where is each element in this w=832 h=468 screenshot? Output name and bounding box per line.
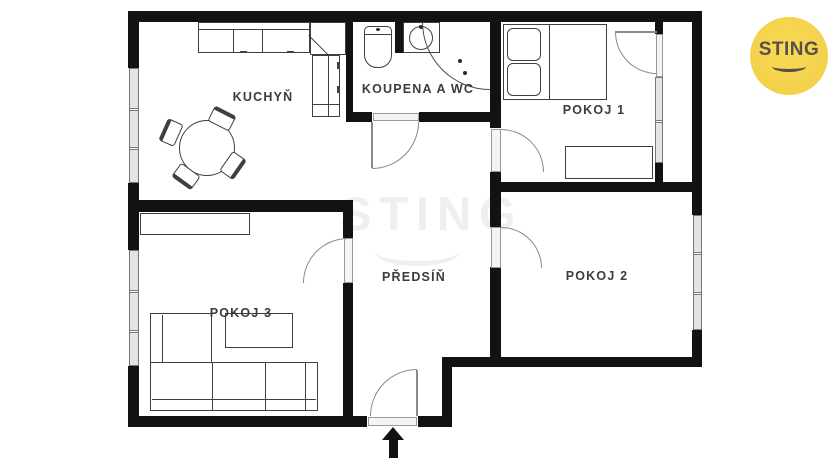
cabinet-handle (240, 51, 247, 53)
toilet-cistern-line (365, 34, 391, 35)
wall-loggia-stub-bottom (655, 163, 663, 182)
sofa-armrest-line (305, 362, 306, 411)
sting-logo-smile-icon (772, 61, 806, 72)
wall-left-b (128, 183, 139, 250)
window-mullion (130, 108, 138, 111)
room-label-kuchyn: KUCHYŇ (233, 90, 294, 104)
cabinet-handle (337, 86, 339, 93)
wall-pokoj3-hall-b (343, 283, 353, 416)
kitchen-counter-side (312, 55, 340, 117)
pillow (507, 28, 541, 61)
entrance-arrow-stem (389, 439, 398, 458)
door-entrance-threshold (368, 417, 417, 426)
window-mullion (694, 252, 701, 255)
corner-bathtub (422, 22, 490, 90)
wall-pokoj3-hall-a (343, 200, 353, 238)
sofa-cushion-line (265, 362, 266, 411)
cabinet-handle (337, 62, 339, 69)
wall-bottom-a (128, 416, 367, 427)
window-mullion (130, 330, 138, 333)
sofa-cushion-line (212, 362, 213, 411)
door-pokoj1-frame (491, 129, 501, 172)
dresser (565, 146, 653, 179)
sofa-seat-line (152, 399, 316, 400)
pillow (507, 63, 541, 96)
wardrobe (140, 213, 250, 235)
wall-hall-north-b (419, 112, 500, 122)
door-pokoj1-arc (501, 129, 544, 172)
room-label-pokoj2: POKOJ 2 (566, 269, 629, 283)
kitchen-counter-top (198, 22, 310, 53)
cabinet-handle (287, 51, 294, 53)
room-label-pokoj1: POKOJ 1 (563, 103, 626, 117)
sofa-bottom-arm (150, 362, 318, 411)
window-mullion (130, 147, 138, 150)
window-mullion (694, 292, 701, 295)
room-label-pokoj3: POKOJ 3 (210, 306, 273, 320)
wall-pokoj2-bottom (442, 357, 702, 367)
sting-logo-text: STING (759, 40, 820, 59)
kitchen-counter-divider (328, 55, 329, 117)
wall-top (128, 11, 702, 22)
kitchen-corner-cabinet (310, 22, 346, 55)
kitchen-counter-divider (312, 104, 340, 105)
window-pokoj1 (655, 77, 663, 163)
wall-left-a (128, 11, 139, 68)
watermark-smile-swoosh (374, 236, 460, 266)
wall-hall-north-a (346, 112, 372, 122)
wall-pokoj1-pokoj2 (500, 182, 702, 192)
wall-center-c (490, 267, 501, 367)
wall-bath-partition (395, 22, 403, 53)
door-bathroom-frame (373, 113, 419, 121)
wall-center-a (490, 11, 501, 128)
bed-blanket-line (549, 24, 550, 100)
door-loggia-frame (656, 34, 663, 77)
wall-step (442, 357, 452, 427)
door-pokoj2-arc (501, 227, 542, 268)
door-bathroom-arc (372, 122, 419, 169)
door-pokoj2-frame (491, 227, 501, 268)
wall-kitchen-bath (346, 11, 353, 122)
toilet (364, 26, 392, 68)
room-label-predsin: PŘEDSÍŇ (382, 270, 446, 284)
bathtub-faucet (463, 71, 467, 75)
door-pokoj3-arc (303, 238, 348, 283)
window-mullion (130, 290, 138, 293)
window-pokoj2 (693, 215, 702, 330)
floor-plan: STING (0, 0, 832, 468)
kitchen-counter-divider (262, 29, 263, 53)
toilet-flush-button (376, 28, 380, 31)
room-label-koupelna: KOUPENA A WC (362, 82, 474, 96)
wall-center-b (490, 172, 501, 227)
bathtub-faucet (458, 59, 462, 63)
sting-logo: STING (750, 17, 828, 95)
door-loggia-arc (615, 32, 657, 74)
wall-kitchen-pokoj3 (128, 200, 353, 212)
door-entrance-arc (370, 369, 417, 416)
wall-right-b (692, 330, 702, 367)
kitchen-counter-divider (233, 29, 234, 53)
window-kitchen (129, 68, 139, 183)
window-pokoj3 (129, 250, 139, 366)
sofa-seat-line (162, 315, 163, 362)
window-mullion (656, 120, 662, 123)
